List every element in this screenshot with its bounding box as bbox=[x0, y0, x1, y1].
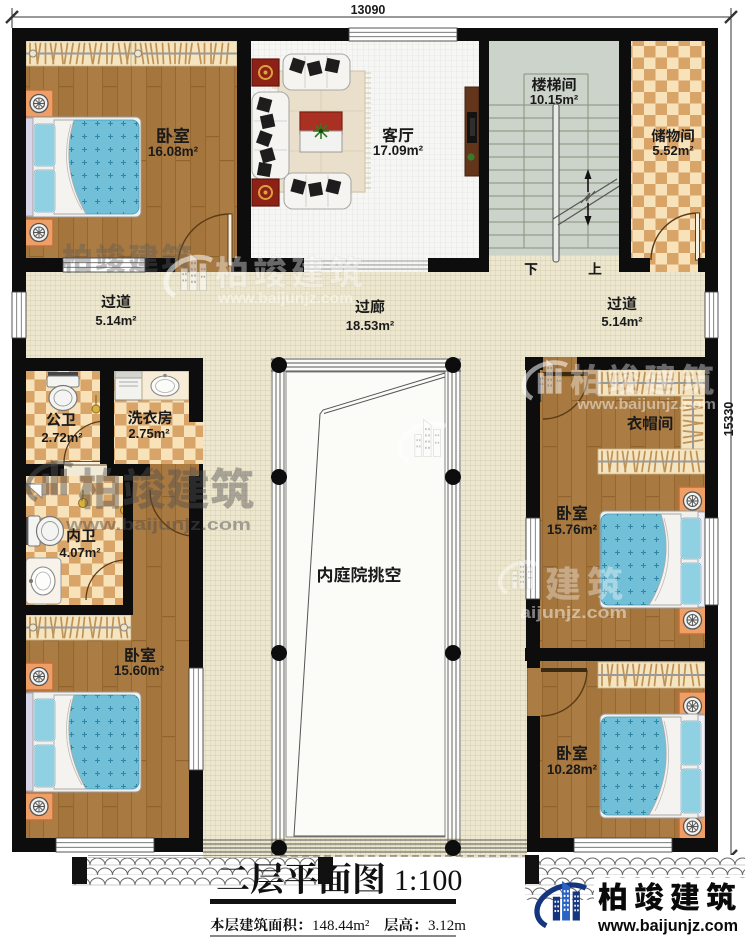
svg-text:5.52m²: 5.52m² bbox=[652, 143, 694, 158]
svg-text:5.14m²: 5.14m² bbox=[95, 313, 137, 328]
svg-text:10.15m²: 10.15m² bbox=[530, 92, 579, 107]
svg-text:18.53m²: 18.53m² bbox=[346, 318, 395, 333]
svg-text:10.28m²: 10.28m² bbox=[547, 762, 598, 777]
svg-text:15330: 15330 bbox=[722, 402, 736, 437]
svg-text:148.44m²: 148.44m² bbox=[312, 918, 370, 934]
svg-text:15.60m²: 15.60m² bbox=[114, 663, 165, 678]
svg-text:13090: 13090 bbox=[351, 3, 386, 17]
svg-text:aijunjz.com: aijunjz.com bbox=[520, 604, 627, 622]
svg-text:4.07m²: 4.07m² bbox=[59, 545, 101, 560]
svg-text:www.baijunjz.com: www.baijunjz.com bbox=[576, 397, 716, 413]
svg-text:17.09m²: 17.09m² bbox=[373, 143, 424, 158]
svg-text:15.76m²: 15.76m² bbox=[547, 522, 598, 537]
svg-text:www.baijunjz.com: www.baijunjz.com bbox=[217, 290, 353, 307]
svg-text:www.baijunjz.com: www.baijunjz.com bbox=[597, 917, 738, 935]
svg-text:3.12m: 3.12m bbox=[428, 918, 466, 934]
svg-text:1:100: 1:100 bbox=[394, 864, 462, 897]
svg-text:2.75m²: 2.75m² bbox=[128, 426, 170, 441]
svg-text:16.08m²: 16.08m² bbox=[148, 144, 199, 159]
svg-text:2.72m²: 2.72m² bbox=[41, 430, 83, 445]
svg-text:5.14m²: 5.14m² bbox=[601, 314, 643, 329]
svg-text:www.baijunjz.com: www.baijunjz.com bbox=[65, 515, 251, 534]
